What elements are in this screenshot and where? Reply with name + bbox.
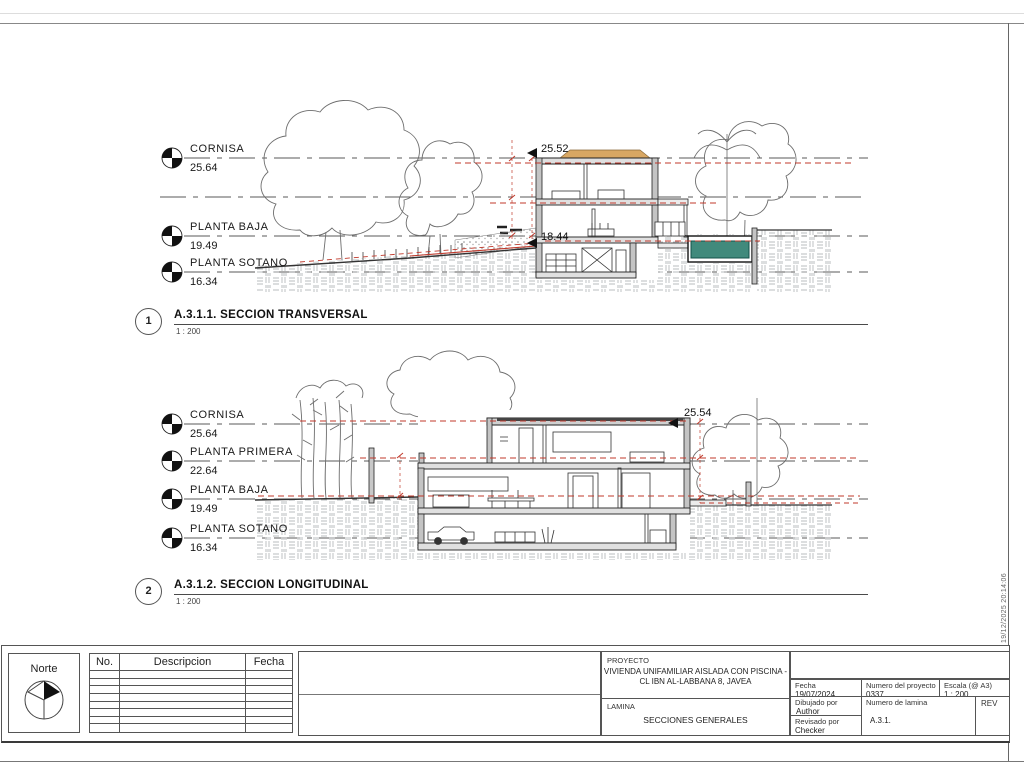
revision-cell-empty xyxy=(90,679,120,687)
revision-cell-empty xyxy=(246,694,292,702)
revision-cell-empty xyxy=(120,671,246,679)
building-longitudinal xyxy=(418,410,726,552)
frame-bottom xyxy=(0,761,1024,762)
spot-elevation: 18.44 xyxy=(541,231,569,243)
project-name-line1: VIVIENDA UNIFAMILIAR AISLADA CON PISCINA… xyxy=(602,667,789,677)
revision-cell-empty xyxy=(246,679,292,687)
level-label: PLANTA SOTANO 16.34 xyxy=(190,258,340,288)
revision-cell-empty xyxy=(120,686,246,694)
section-title-rule xyxy=(174,594,868,595)
drawing-sheet: CORNISA 25.64 PLANTA BAJA 19.49 PLANTA S… xyxy=(0,0,1024,768)
scale-cell: Escala (@ A3) 1 : 200 xyxy=(939,679,1009,697)
sheet-name-box: LAMINA SECCIONES GENERALES xyxy=(601,698,790,736)
consultant-box-upper xyxy=(299,652,600,695)
section-title: A.3.1.1. SECCION TRANSVERSAL xyxy=(174,309,368,321)
plot-date-stamp: 19/12/2025 20:14:06 xyxy=(1001,573,1008,643)
section-title-rule xyxy=(174,324,868,325)
revision-cell-empty xyxy=(120,724,246,732)
revision-cell-empty xyxy=(120,679,246,687)
revision-cell-empty xyxy=(246,686,292,694)
revision-cell-empty xyxy=(120,709,246,717)
consultant-box xyxy=(298,651,601,736)
sheet-number-value: A.3.1. xyxy=(870,716,976,725)
sheet-number-cell: Numero de lamina A.3.1. xyxy=(861,696,976,736)
checked-by-label: Revisado por xyxy=(795,717,862,726)
section-number-badge: 2 xyxy=(135,578,162,605)
north-arrow-icon xyxy=(20,676,68,724)
level-value: 19.49 xyxy=(190,241,340,252)
spot-elevation: 25.52 xyxy=(541,143,569,155)
client-box xyxy=(790,651,1009,679)
revision-cell-empty xyxy=(90,671,120,679)
section-scale: 1 : 200 xyxy=(176,597,200,606)
project-label: PROYECTO xyxy=(607,656,789,665)
spot-elevation: 25.54 xyxy=(684,407,712,419)
revision-table: No. Descripcion Fecha xyxy=(89,653,293,733)
revision-cell-empty xyxy=(90,694,120,702)
level-value: 25.64 xyxy=(190,429,340,440)
level-label: PLANTA SOTANO 16.34 xyxy=(190,524,340,554)
sheet-label: LAMINA xyxy=(607,702,789,711)
revision-cell-empty xyxy=(90,702,120,710)
project-box: PROYECTO VIVIENDA UNIFAMILIAR AISLADA CO… xyxy=(601,651,790,698)
level-name: PLANTA BAJA xyxy=(190,222,340,233)
revision-col-descripcion: Descripcion xyxy=(120,654,246,671)
level-label: CORNISA 25.64 xyxy=(190,144,340,174)
revision-cell-empty xyxy=(120,694,246,702)
level-value: 25.64 xyxy=(190,163,340,174)
level-label: PLANTA BAJA 19.49 xyxy=(190,222,340,252)
sheet-name: SECCIONES GENERALES xyxy=(602,715,789,725)
outer-frame-top xyxy=(0,13,1024,14)
level-markers-2 xyxy=(162,414,182,548)
title-block: Norte No. Descripcion Fecha xyxy=(1,645,1010,743)
level-name: CORNISA xyxy=(190,144,340,155)
drawn-by-cell: Dibujado por Author xyxy=(790,696,862,716)
revision-cell-empty xyxy=(246,671,292,679)
revision-col-no: No. xyxy=(90,654,120,671)
level-name: PLANTA BAJA xyxy=(190,485,340,496)
revision-cell-empty xyxy=(246,709,292,717)
section-number-badge: 1 xyxy=(135,308,162,335)
project-number-label: Numero del proyecto xyxy=(866,681,940,690)
level-value: 22.64 xyxy=(190,466,340,477)
project-name-line2: CL IBN AL-LABBANA 8, JAVEA xyxy=(602,677,789,687)
level-label: PLANTA BAJA 19.49 xyxy=(190,485,340,515)
project-number-cell: Numero del proyecto 0337 xyxy=(861,679,940,697)
drawn-by-label: Dibujado por xyxy=(795,698,862,707)
revision-cell-empty xyxy=(246,717,292,725)
revision-cell-empty xyxy=(246,724,292,732)
revision-cell-empty xyxy=(90,686,120,694)
revision-cell-empty xyxy=(120,717,246,725)
level-value: 16.34 xyxy=(190,277,340,288)
checked-by-value: Checker xyxy=(795,726,862,735)
level-name: PLANTA PRIMERA xyxy=(190,447,340,458)
north-box: Norte xyxy=(8,653,80,733)
level-value: 19.49 xyxy=(190,504,340,515)
revision-col-fecha: Fecha xyxy=(246,654,292,671)
level-markers xyxy=(162,148,182,282)
revision-cell-empty xyxy=(90,724,120,732)
level-name: PLANTA SOTANO xyxy=(190,258,340,269)
frame-top xyxy=(0,23,1024,24)
level-value: 16.34 xyxy=(190,543,340,554)
revision-cell-empty xyxy=(90,709,120,717)
level-label: CORNISA 25.64 xyxy=(190,410,340,440)
level-name: PLANTA SOTANO xyxy=(190,524,340,535)
sheet-number-label: Numero de lamina xyxy=(866,698,976,707)
revision-cell-empty xyxy=(120,702,246,710)
level-label: PLANTA PRIMERA 22.64 xyxy=(190,447,340,477)
rev-label: REV xyxy=(981,699,1009,708)
scale-label: Escala (@ A3) xyxy=(944,681,1009,690)
rev-cell: REV xyxy=(975,696,1009,736)
checked-by-cell: Revisado por Checker xyxy=(790,715,862,736)
revision-cell-empty xyxy=(246,702,292,710)
revision-cell-empty xyxy=(90,717,120,725)
north-label: Norte xyxy=(9,663,79,675)
date-cell: Fecha 19/07/2024 xyxy=(790,679,862,697)
date-label: Fecha xyxy=(795,681,862,690)
section-scale: 1 : 200 xyxy=(176,327,200,336)
level-name: CORNISA xyxy=(190,410,340,421)
section-title: A.3.1.2. SECCION LONGITUDINAL xyxy=(174,579,369,591)
